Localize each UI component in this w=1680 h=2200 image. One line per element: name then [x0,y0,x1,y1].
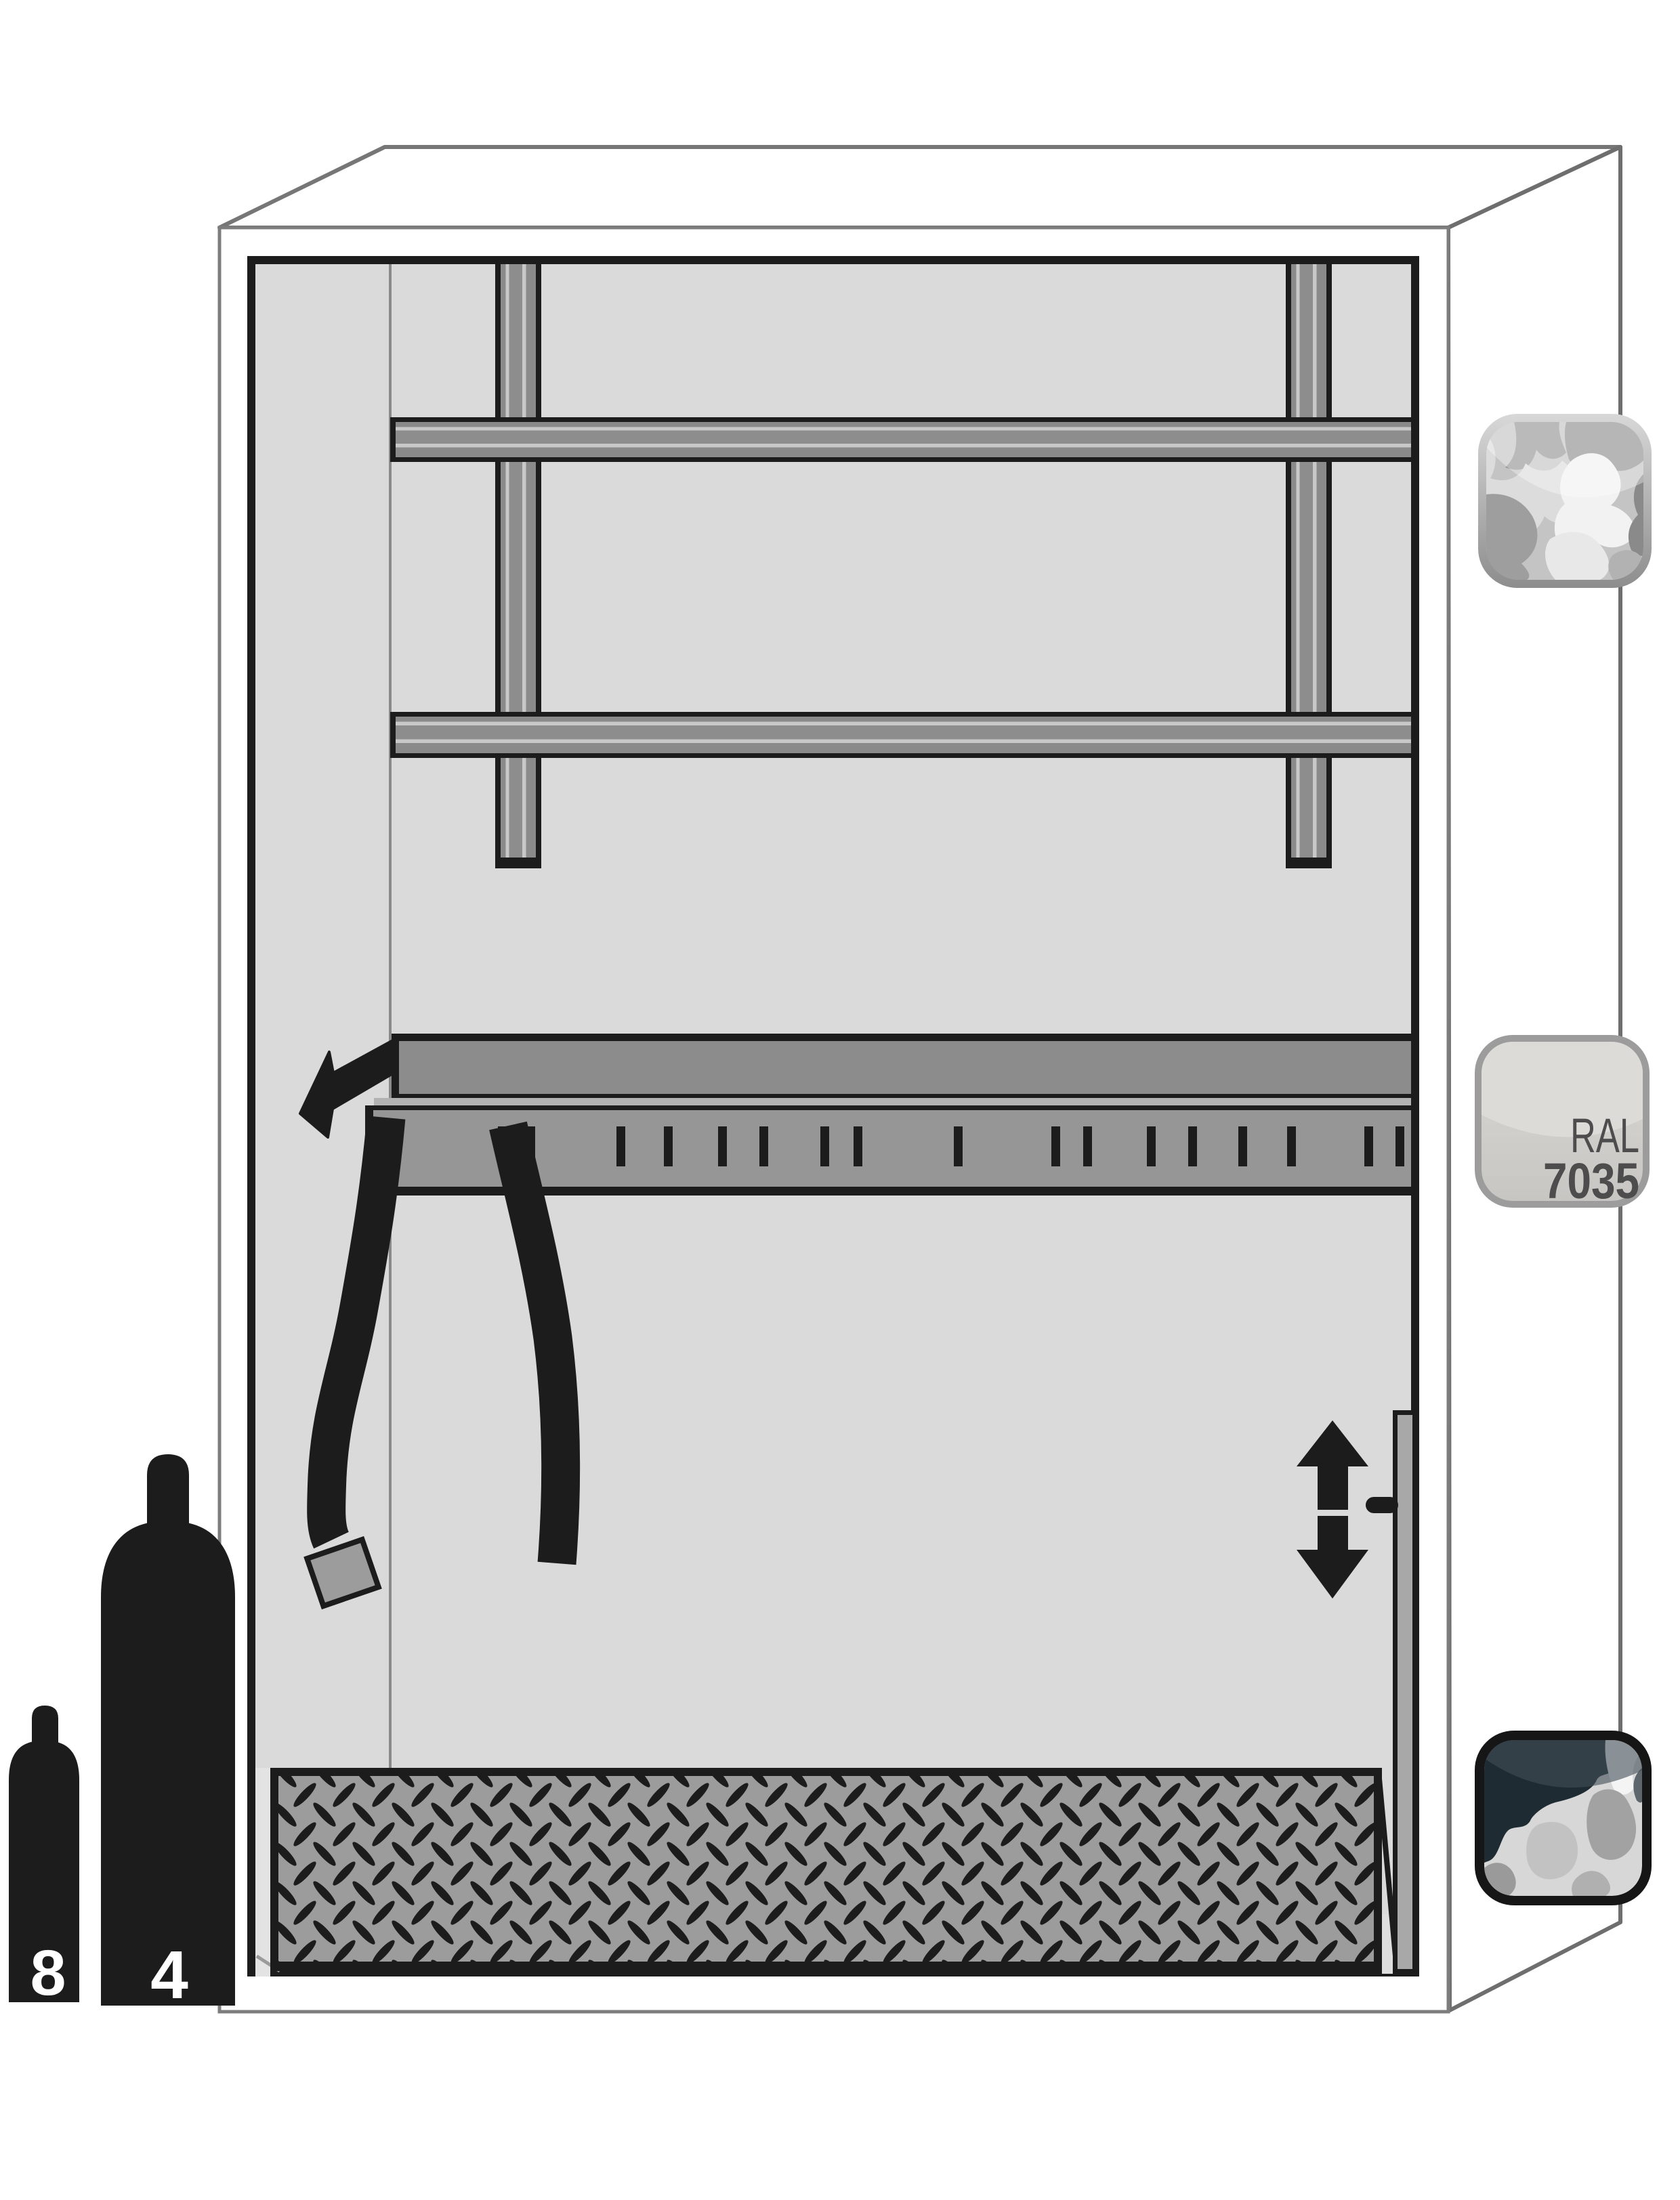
svg-text:7035: 7035 [1543,1153,1639,1209]
svg-text:8: 8 [30,1937,66,2009]
svg-text:4: 4 [150,1937,188,2013]
